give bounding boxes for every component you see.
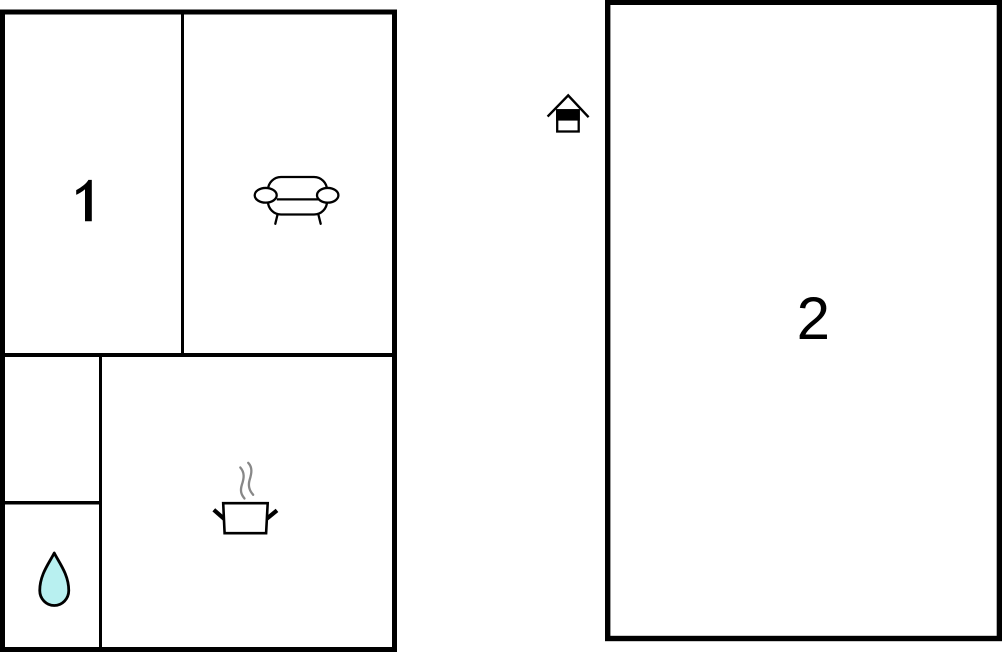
svg-text:2: 2 bbox=[797, 285, 830, 352]
